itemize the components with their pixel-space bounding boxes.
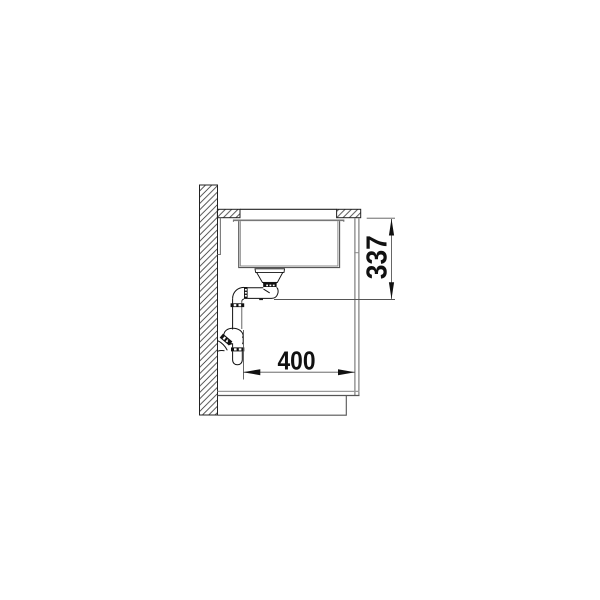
- svg-text:337: 337: [362, 235, 394, 279]
- svg-text:400: 400: [278, 346, 316, 376]
